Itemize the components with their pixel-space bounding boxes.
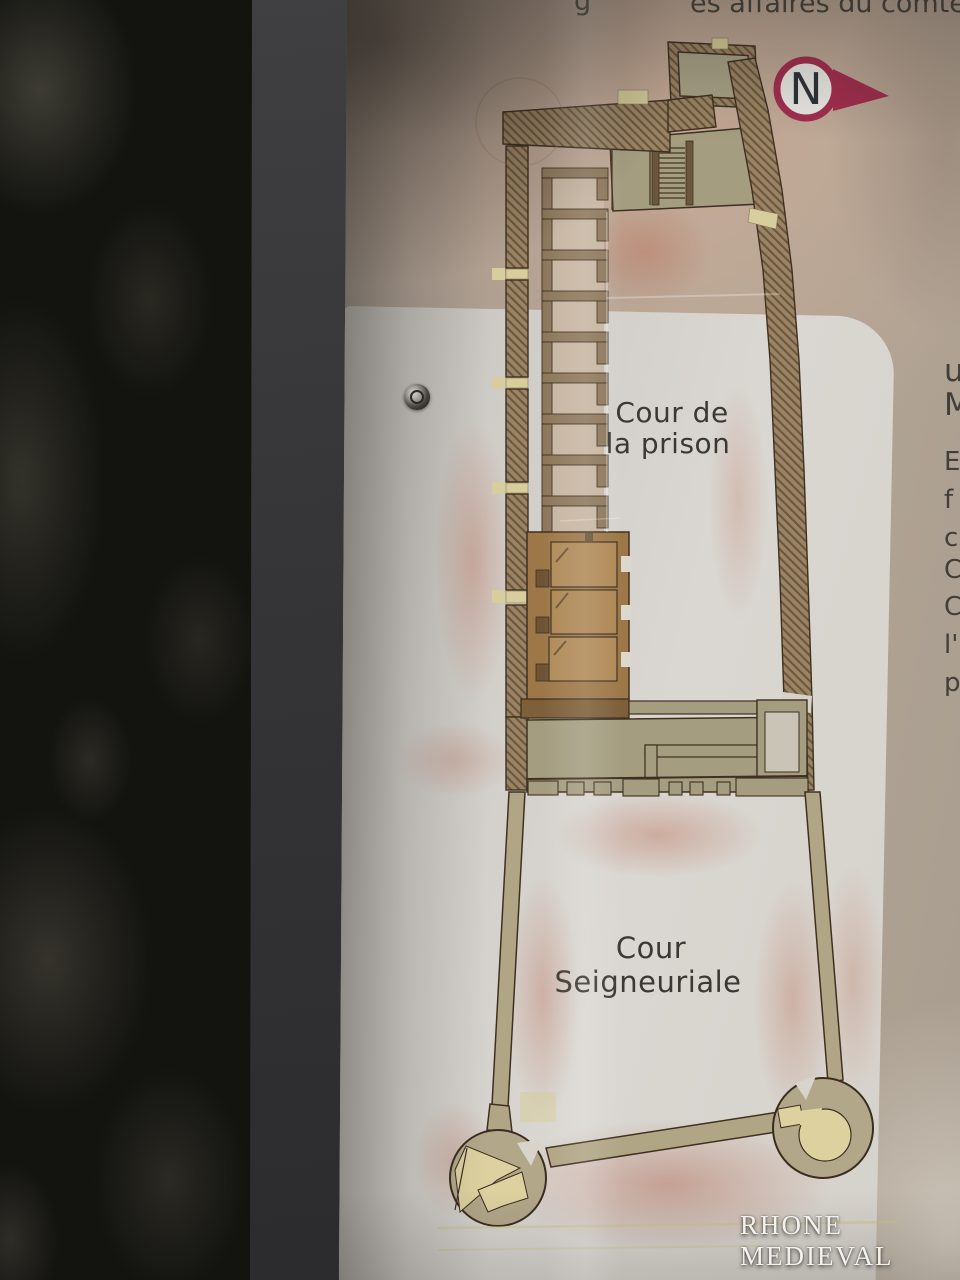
prison-court-label-line2: la prison [606,427,731,460]
right-text-column-cut: u M E f c C C l' p [944,0,960,760]
text-fragment: l' [944,632,960,658]
header-text-cut: g es affaires du comte [338,0,960,24]
text-fragment: u [944,356,960,387]
prison-cells [542,168,608,539]
screw-center [410,390,424,404]
text-fragment: C [944,594,960,620]
stone-wall-background [0,0,275,1280]
mounting-screw [404,384,430,410]
watermark: RHONE MEDIEVAL [740,1210,960,1272]
text-fragment: p [944,670,960,696]
header-fragment-g: g [574,0,591,17]
text-fragment: f [944,487,960,513]
highlighted-rooms [521,532,631,718]
text-fragment: E [944,449,960,475]
seigneurial-court-label-line1: Cour [616,931,686,965]
sign-panel: N Cour de la prison Cour Seigneuriale g … [338,0,960,1280]
text-fragment: C [944,557,960,583]
south-towers [450,1076,873,1226]
seigneurial-court-label-line2: Seigneuriale [555,965,742,999]
text-fragment: M [944,390,960,421]
north-label: N [790,64,823,115]
text-fragment: c [944,525,960,551]
header-fragment-right: es affaires du comte [690,0,960,19]
photo-of-castle-plan-sign: N Cour de la prison Cour Seigneuriale g … [0,0,960,1280]
floor-plan: N Cour de la prison Cour Seigneuriale [430,30,960,1280]
north-arrow-icon: N [777,60,889,118]
prison-court-label-line1: Cour de [615,396,728,429]
